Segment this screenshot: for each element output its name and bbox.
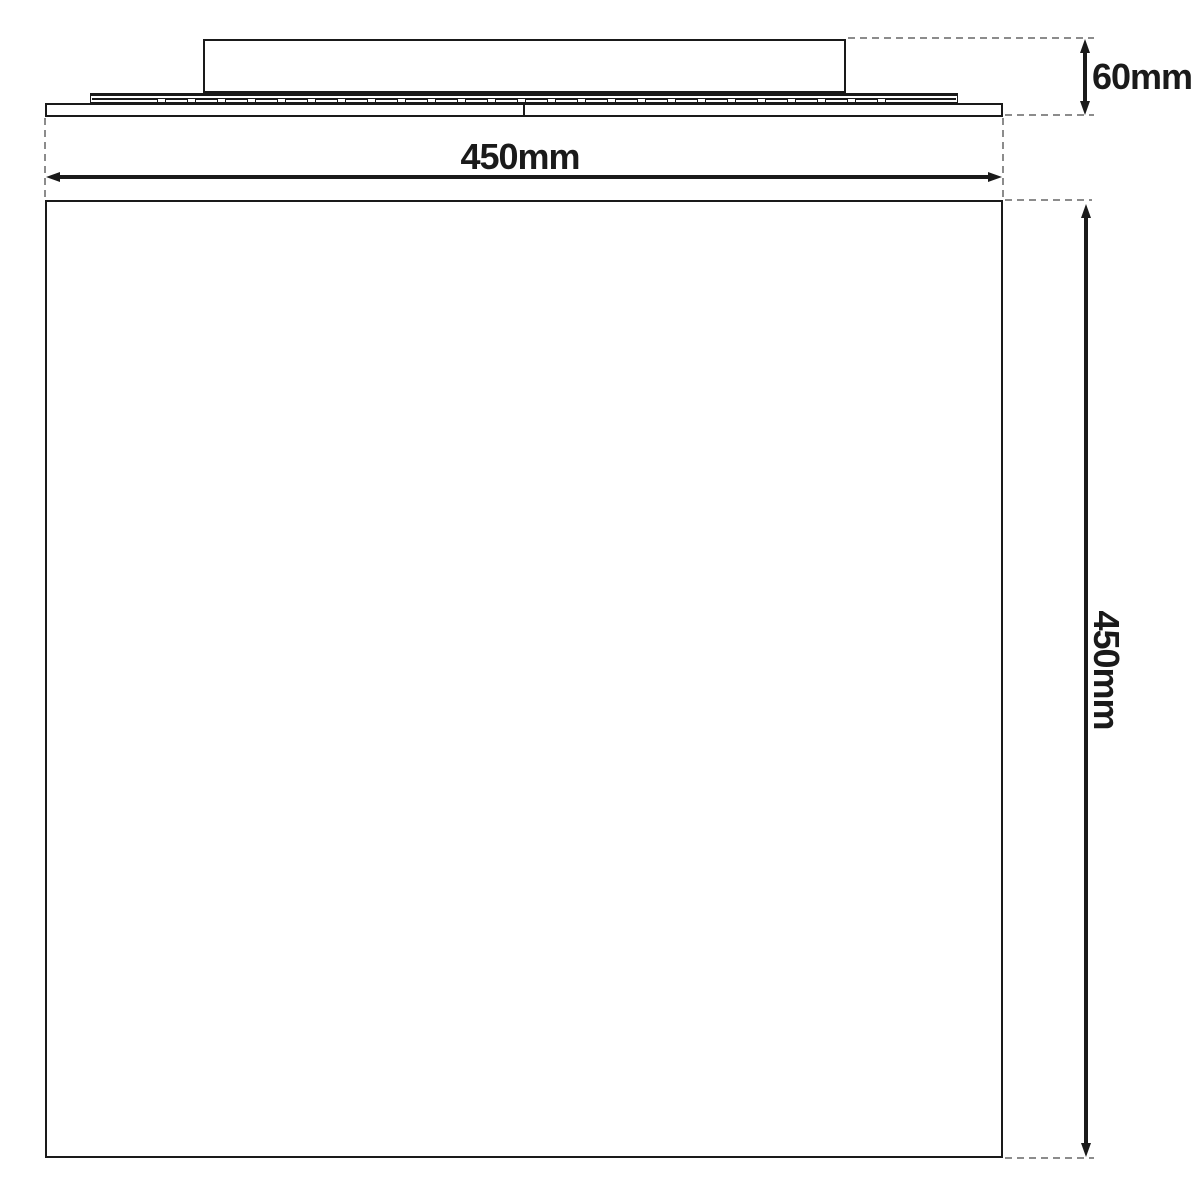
arrowhead-left-icon	[46, 172, 60, 182]
width-dimension-label: 450mm	[460, 139, 579, 175]
height-dimension-label: 450mm	[1088, 610, 1124, 729]
extension-line-panel-right	[1002, 118, 1004, 198]
extension-line-box-top	[848, 37, 1094, 39]
depth-dimension-label: 60mm	[1092, 59, 1192, 95]
arrowhead-up-icon	[1081, 204, 1091, 218]
mounting-box	[203, 39, 846, 93]
dimension-drawing: 450mm 60mm 450mm	[0, 0, 1200, 1200]
arrowhead-right-icon	[988, 172, 1002, 182]
depth-dimension-line	[1083, 50, 1087, 104]
extension-line-panel-left	[44, 118, 46, 199]
extension-line-square-top-right	[1005, 199, 1092, 201]
arrowhead-down-icon	[1081, 1143, 1091, 1157]
front-panel	[45, 200, 1003, 1158]
panel-base-seam	[523, 103, 525, 117]
arrowhead-up-icon	[1080, 39, 1090, 53]
arrowhead-down-icon	[1080, 101, 1090, 115]
extension-line-square-bottom-right	[1005, 1157, 1094, 1159]
